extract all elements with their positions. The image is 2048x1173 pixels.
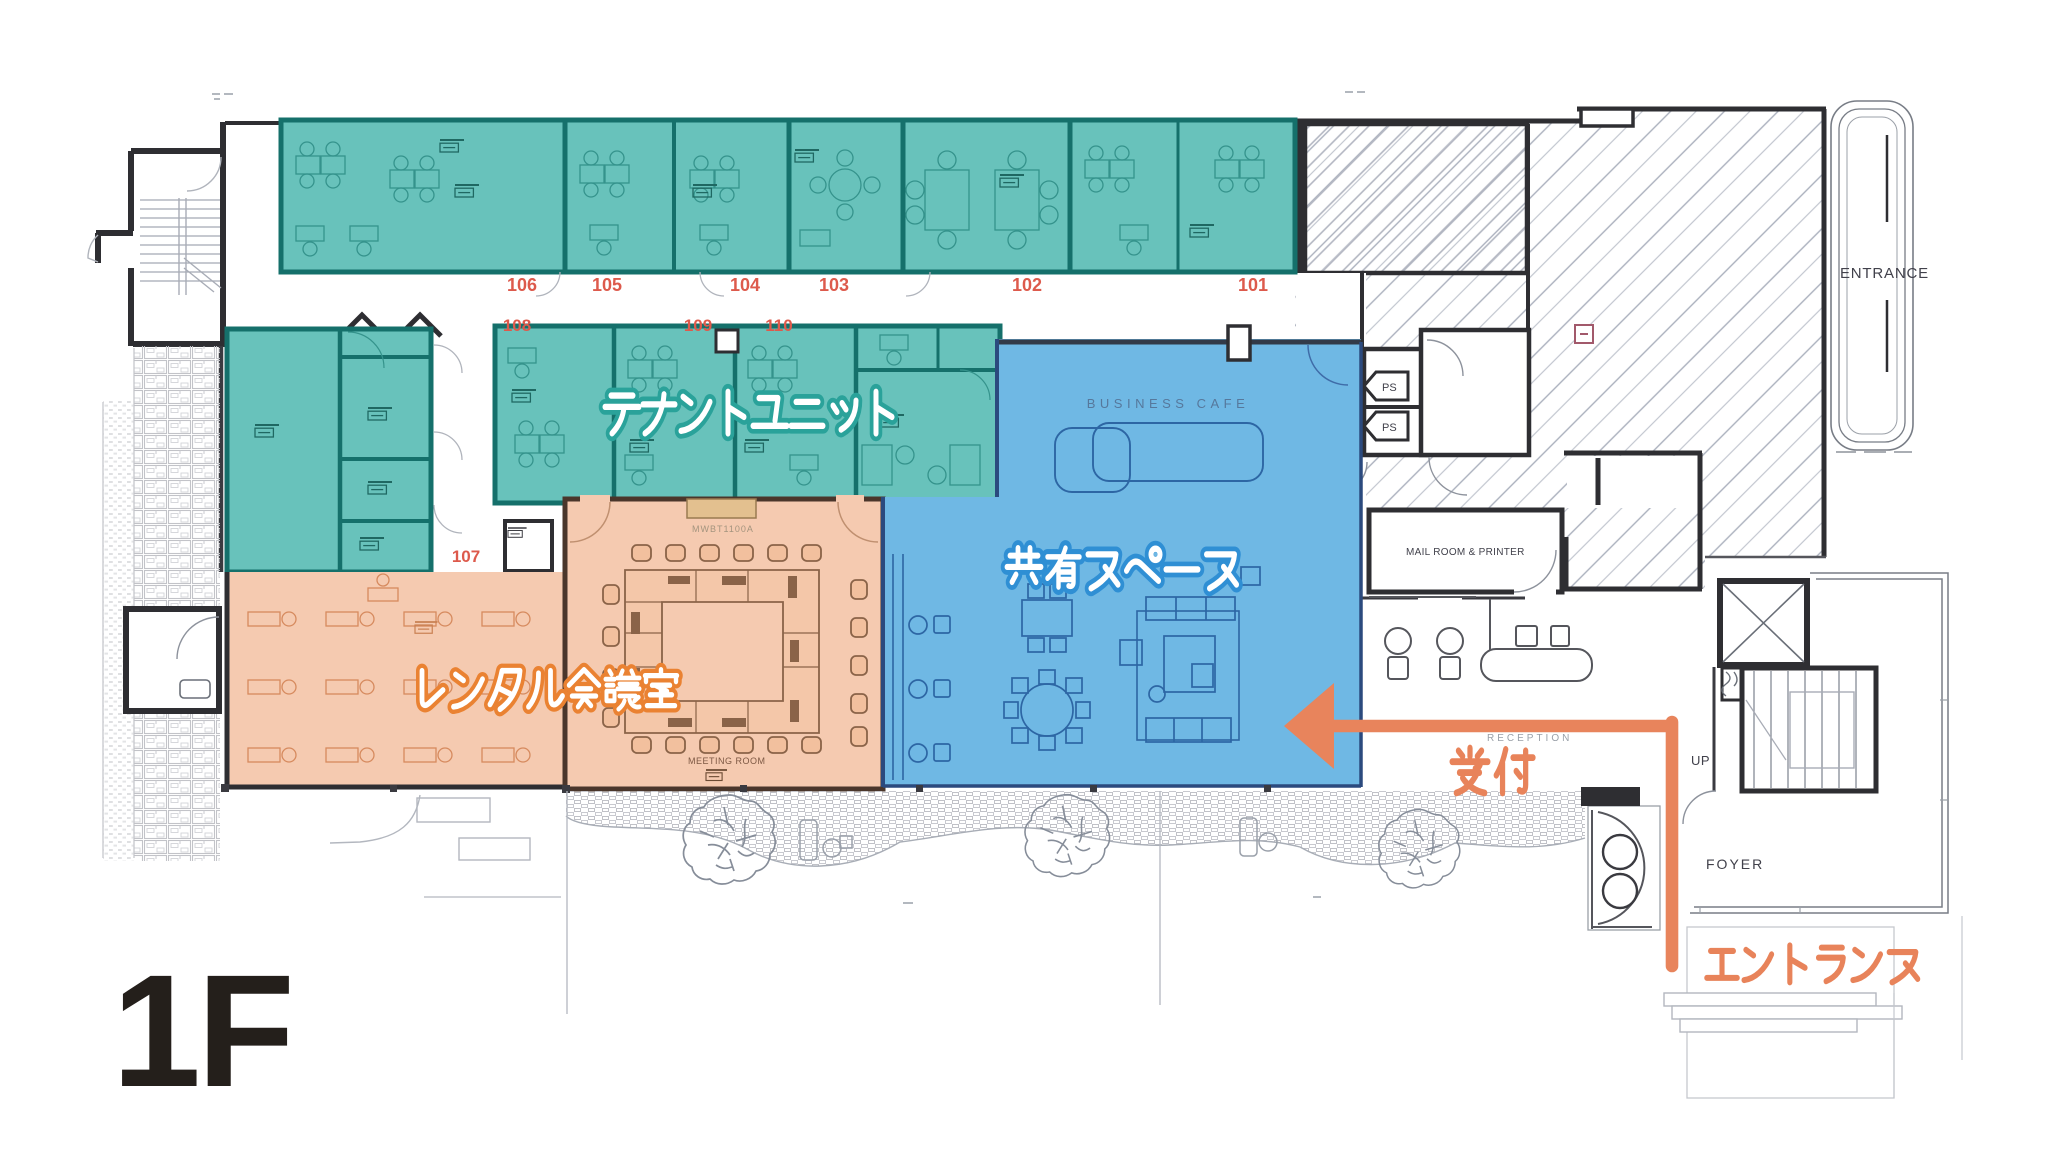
svg-text:108: 108: [503, 316, 531, 335]
svg-text:101: 101: [1238, 275, 1268, 295]
svg-text:103: 103: [819, 275, 849, 295]
svg-text:PS: PS: [1382, 382, 1397, 394]
svg-text:1F: 1F: [112, 941, 291, 1120]
svg-text:110: 110: [765, 316, 792, 335]
svg-text:RECEPTION: RECEPTION: [1487, 733, 1572, 744]
svg-text:MAIL ROOM & PRINTER: MAIL ROOM & PRINTER: [1406, 547, 1525, 558]
svg-text:MEETING ROOM: MEETING ROOM: [688, 756, 766, 766]
svg-text:MWBT1100A: MWBT1100A: [692, 524, 754, 534]
svg-text:105: 105: [592, 275, 622, 295]
svg-text:UP: UP: [1691, 753, 1710, 768]
svg-text:109: 109: [684, 316, 712, 335]
svg-text:FOYER: FOYER: [1706, 856, 1764, 872]
svg-text:ENTRANCE: ENTRANCE: [1840, 265, 1929, 282]
svg-text:106: 106: [507, 275, 537, 295]
svg-text:PS: PS: [1382, 422, 1397, 434]
svg-text:BUSINESS CAFE: BUSINESS CAFE: [1087, 396, 1250, 411]
svg-text:107: 107: [452, 547, 480, 566]
svg-text:102: 102: [1012, 275, 1042, 295]
svg-text:104: 104: [730, 275, 760, 295]
